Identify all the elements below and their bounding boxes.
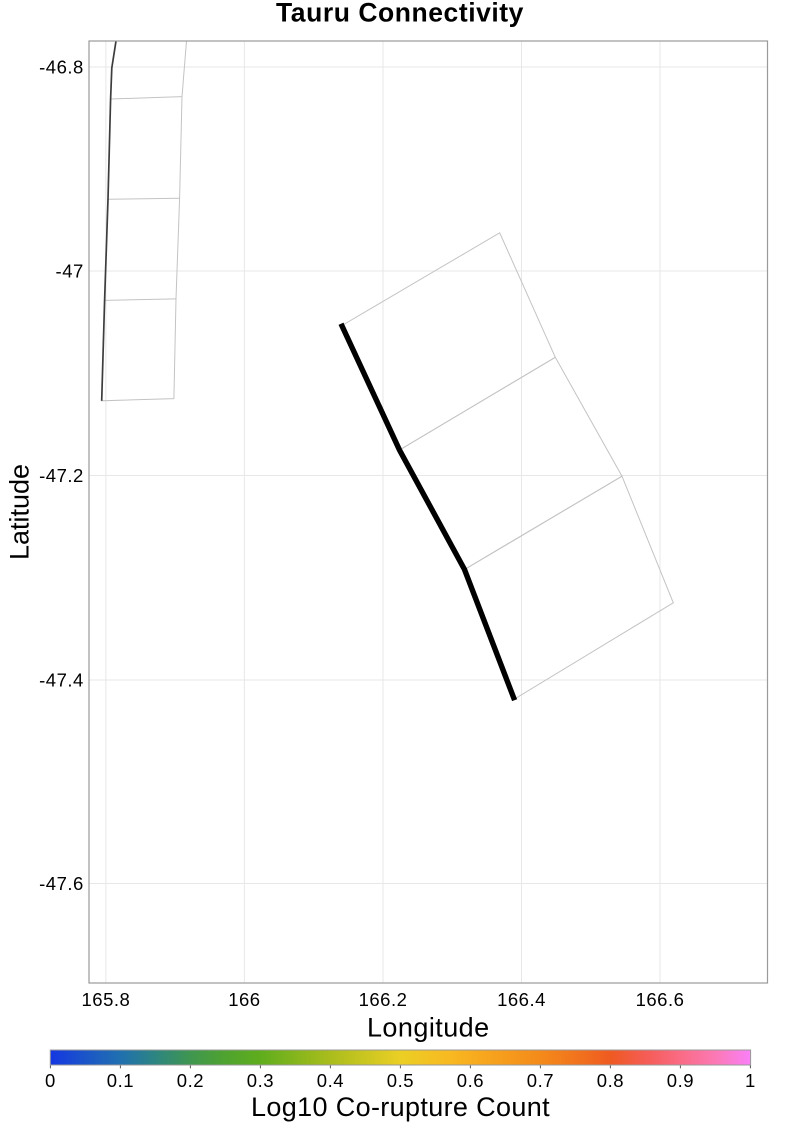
svg-text:Tauru Connectivity: Tauru Connectivity bbox=[276, 0, 524, 28]
svg-text:0.5: 0.5 bbox=[387, 1070, 414, 1091]
svg-text:0.6: 0.6 bbox=[457, 1070, 484, 1091]
svg-text:-47.6: -47.6 bbox=[39, 873, 84, 894]
svg-text:165.8: 165.8 bbox=[82, 989, 131, 1010]
svg-text:-47: -47 bbox=[56, 261, 84, 282]
svg-text:0.4: 0.4 bbox=[317, 1070, 344, 1091]
svg-text:0.3: 0.3 bbox=[247, 1070, 274, 1091]
svg-text:166.4: 166.4 bbox=[497, 989, 546, 1010]
svg-text:166: 166 bbox=[228, 989, 260, 1010]
svg-text:0.1: 0.1 bbox=[107, 1070, 134, 1091]
svg-text:0.2: 0.2 bbox=[177, 1070, 204, 1091]
svg-text:166.2: 166.2 bbox=[359, 989, 408, 1010]
svg-text:-46.8: -46.8 bbox=[39, 57, 84, 78]
svg-text:Longitude: Longitude bbox=[367, 1013, 490, 1043]
svg-text:Log10 Co-rupture Count: Log10 Co-rupture Count bbox=[251, 1092, 550, 1122]
svg-text:Latitude: Latitude bbox=[4, 464, 34, 560]
svg-text:166.6: 166.6 bbox=[636, 989, 685, 1010]
svg-text:-47.4: -47.4 bbox=[39, 670, 84, 691]
svg-text:0.8: 0.8 bbox=[597, 1070, 624, 1091]
svg-text:1: 1 bbox=[745, 1070, 756, 1091]
svg-text:0.9: 0.9 bbox=[667, 1070, 694, 1091]
svg-text:0: 0 bbox=[45, 1070, 56, 1091]
svg-text:-47.2: -47.2 bbox=[39, 465, 84, 486]
svg-text:0.7: 0.7 bbox=[527, 1070, 554, 1091]
